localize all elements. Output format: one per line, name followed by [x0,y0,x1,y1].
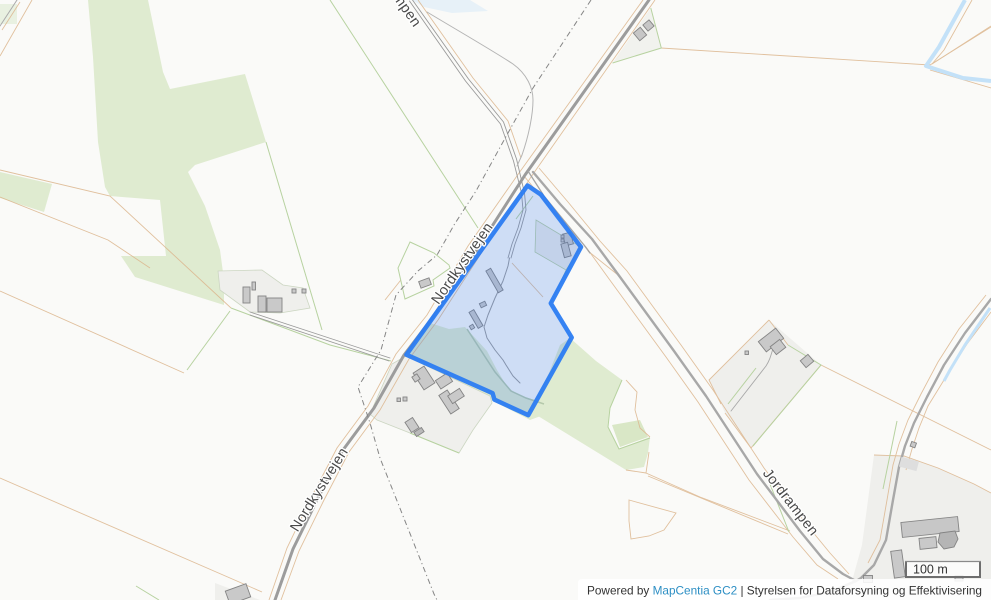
svg-text:100 m: 100 m [913,563,948,577]
svg-text:Powered by MapCentia GC2 | Sty: Powered by MapCentia GC2 | Styrelsen for… [587,584,982,598]
